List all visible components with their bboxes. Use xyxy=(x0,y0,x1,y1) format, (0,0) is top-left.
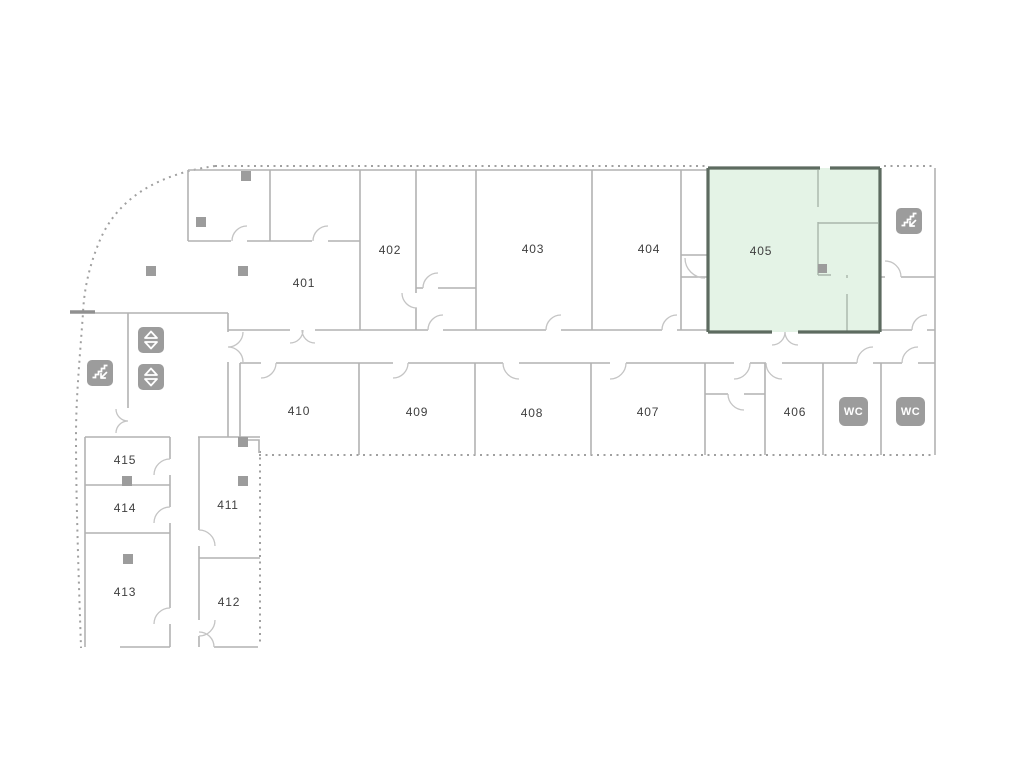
room-label-410[interactable]: 410 xyxy=(277,404,321,418)
room-label-412[interactable]: 412 xyxy=(207,595,251,609)
elevator-icon xyxy=(138,327,164,353)
room-label-413[interactable]: 413 xyxy=(103,585,147,599)
room-405-selected-area[interactable] xyxy=(708,168,880,332)
stairs-icon xyxy=(896,208,922,234)
room-label-405[interactable]: 405 xyxy=(739,244,783,258)
floor-plan: 401 402 403 404 405 406 407 408 409 410 … xyxy=(0,0,1024,769)
room-label-406[interactable]: 406 xyxy=(773,405,817,419)
room-label-409[interactable]: 409 xyxy=(395,405,439,419)
stairs-glyph xyxy=(87,360,113,386)
room-label-404[interactable]: 404 xyxy=(627,242,671,256)
stairs-icon xyxy=(87,360,113,386)
room-405-highlight xyxy=(708,168,880,332)
room-label-407[interactable]: 407 xyxy=(626,405,670,419)
elevator-arrows-glyph xyxy=(138,364,164,390)
stairs-glyph xyxy=(896,208,922,234)
room-label-415[interactable]: 415 xyxy=(103,453,147,467)
room-label-401[interactable]: 401 xyxy=(282,276,326,290)
wc-icon: WC xyxy=(839,397,868,426)
room-label-408[interactable]: 408 xyxy=(510,406,554,420)
elevator-icon xyxy=(138,364,164,390)
room-label-414[interactable]: 414 xyxy=(103,501,147,515)
room-label-403[interactable]: 403 xyxy=(511,242,555,256)
elevator-arrows-glyph xyxy=(138,327,164,353)
room-label-402[interactable]: 402 xyxy=(368,243,412,257)
room-label-411[interactable]: 411 xyxy=(206,498,250,512)
wc-icon: WC xyxy=(896,397,925,426)
